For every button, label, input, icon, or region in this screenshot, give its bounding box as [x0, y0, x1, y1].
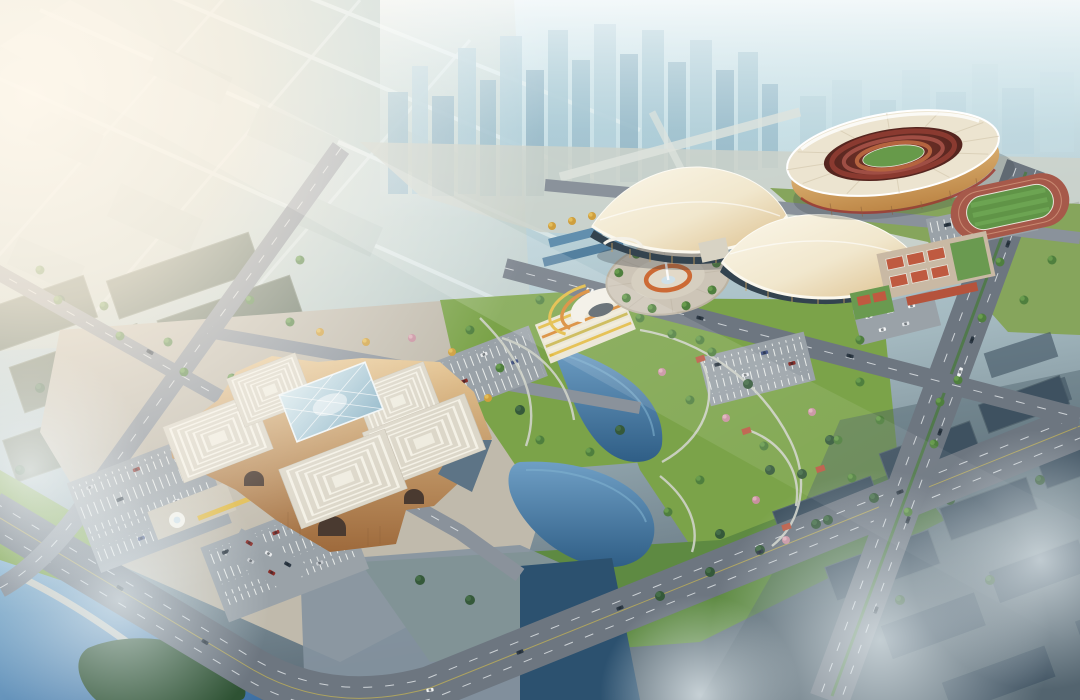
sun-glow: [0, 0, 1080, 700]
atmosphere: [0, 0, 1080, 700]
rendering-canvas: [0, 0, 1080, 700]
aerial-rendering: [0, 0, 1080, 700]
